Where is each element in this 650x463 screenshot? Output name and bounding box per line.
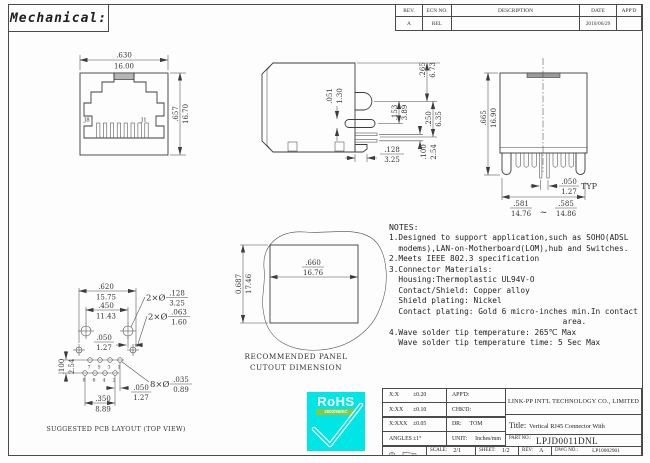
projection-symbol-cell bbox=[382, 446, 427, 456]
notes-line: Wave solder tip temperature time: 5 Sec … bbox=[389, 338, 647, 349]
svg-text:8.89: 8.89 bbox=[95, 406, 111, 414]
svg-text:7: 7 bbox=[87, 365, 90, 371]
shield-hole-left bbox=[78, 323, 94, 339]
svg-text:.265: .265 bbox=[419, 62, 427, 78]
tolerance-row: X:XX ±0.10 bbox=[382, 402, 447, 417]
rohs-checkmark-icon bbox=[307, 392, 365, 451]
svg-text:4: 4 bbox=[102, 378, 105, 384]
notes-line: Housing:Thermoplastic UL94V-O bbox=[389, 275, 647, 286]
dim-pcb-upper-span: .450 11.43 bbox=[86, 302, 128, 324]
svg-text:15.75: 15.75 bbox=[96, 294, 116, 302]
svg-text:2×Ø: 2×Ø bbox=[146, 293, 166, 304]
typ-suffix: TYP bbox=[581, 182, 598, 191]
callout-pin-holes: 8×Ø .035 0.89 bbox=[122, 362, 193, 395]
appd-cell: APP'D: bbox=[446, 388, 506, 403]
svg-text:3.89: 3.89 bbox=[401, 105, 409, 121]
notes-heading: NOTES: bbox=[389, 221, 647, 233]
contact-slots bbox=[97, 123, 149, 138]
side-pin-upper bbox=[355, 133, 377, 136]
rear-shield-legs bbox=[502, 153, 585, 175]
rev-cell: REV: A bbox=[518, 446, 552, 456]
svg-text:3.25: 3.25 bbox=[169, 300, 185, 308]
unit-cell: UNIT: Inches/mm bbox=[446, 431, 506, 446]
svg-text:.063: .063 bbox=[171, 308, 187, 316]
svg-text:6: 6 bbox=[92, 378, 95, 384]
svg-text:.620: .620 bbox=[98, 283, 114, 291]
pcb-caption: SUGGESTED PCB LAYOUT (TOP VIEW) bbox=[46, 425, 185, 433]
panel-cutout-view: .660 16.76 0.687 17.46 RECOMMENDED PANEL… bbox=[235, 232, 386, 373]
contact-label-j8: J8 bbox=[83, 118, 90, 124]
pcb-layout-view: .620 15.75 .450 11.43 2×Ø .128 3.25 bbox=[46, 283, 192, 433]
latch-bump bbox=[355, 93, 372, 111]
side-window-right bbox=[335, 142, 344, 151]
rear-top-tab bbox=[527, 73, 560, 78]
range-separator: ~ bbox=[540, 208, 548, 218]
panel-blob-outline bbox=[263, 232, 387, 351]
notes-line: 2.Meets IEEE 802.3 specification bbox=[389, 254, 647, 265]
title-block: X:X ±0.20 X:XX ±0.10 X:XXX ±0.05 ANGLES … bbox=[382, 388, 642, 455]
title-label: Title: bbox=[509, 421, 526, 430]
side-view: .265 6.73 .051 1.30 .153 3.89 bbox=[262, 62, 443, 164]
part-no-value: LPJD0011DNL bbox=[536, 436, 598, 446]
svg-text:16.00: 16.00 bbox=[114, 63, 134, 71]
dim-panel-height: 0.687 17.46 bbox=[235, 245, 268, 323]
side-pin-lower bbox=[355, 140, 377, 143]
callout-post-holes: 2×Ø .063 1.60 bbox=[137, 308, 190, 347]
sheet-cell: SHEET: 1/2 bbox=[475, 446, 519, 456]
tolerance-row: X:X ±0.20 bbox=[382, 388, 447, 403]
svg-text:.128: .128 bbox=[169, 289, 185, 297]
pcb-slot-tab bbox=[345, 120, 375, 128]
svg-text:5: 5 bbox=[97, 365, 100, 371]
svg-text:2×Ø: 2×Ø bbox=[148, 312, 168, 323]
dim-side-post-length: .128 3.25 bbox=[345, 146, 404, 164]
svg-text:.050: .050 bbox=[96, 334, 112, 342]
svg-text:14.76: 14.76 bbox=[511, 210, 532, 218]
dim-side-slot-thickness: .051 1.30 bbox=[326, 88, 344, 141]
side-housing-chamfer bbox=[267, 63, 273, 152]
svg-text:.100: .100 bbox=[420, 144, 428, 160]
dim-pcb-pin-stagger: .050 1.27 bbox=[106, 363, 151, 406]
svg-text:.100: .100 bbox=[58, 359, 66, 375]
title-cell: Title:Vertical RJ45 Connector With 10/10… bbox=[505, 414, 642, 435]
rear-view: .665 16.90 .050 1.27 TYP bbox=[480, 58, 598, 218]
third-angle-projection-icon bbox=[383, 451, 425, 456]
chkd-cell: CHK'D: bbox=[446, 402, 506, 417]
svg-text:1.30: 1.30 bbox=[336, 88, 344, 104]
panel-caption-line1: RECOMMENDED PANEL bbox=[245, 352, 348, 361]
notes-line: 1.Designed to support application,such a… bbox=[389, 233, 647, 244]
company-cell: LINK-PP INT'L TECHNOLOGY CO., LIMITED bbox=[505, 388, 642, 415]
dim-front-height: .657 16.70 bbox=[170, 73, 190, 155]
dim-side-pin-row-pitch: .100 2.54 bbox=[379, 126, 438, 160]
svg-text:.665: .665 bbox=[480, 110, 488, 126]
part-no-label: PART NO.: bbox=[509, 436, 531, 441]
svg-text:.050: .050 bbox=[561, 178, 577, 186]
svg-text:0.687: 0.687 bbox=[235, 274, 243, 294]
svg-text:.660: .660 bbox=[305, 259, 321, 267]
notes-line: Shield plating: Nickel bbox=[389, 296, 647, 307]
notes-block: NOTES: 1.Designed to support application… bbox=[389, 221, 647, 349]
svg-text:1.27: 1.27 bbox=[133, 394, 149, 402]
front-top-tab bbox=[114, 73, 134, 80]
front-body-outline bbox=[80, 73, 168, 155]
notes-line: 3.Connector Materials: bbox=[389, 265, 647, 276]
notes-line: area. bbox=[389, 317, 647, 328]
drawn-by-cell: DR: TOM bbox=[446, 417, 506, 432]
svg-text:.153: .153 bbox=[391, 105, 399, 121]
svg-text:1.60: 1.60 bbox=[171, 319, 187, 327]
svg-text:.051: .051 bbox=[326, 88, 334, 104]
dim-front-width: .630 16.00 bbox=[80, 52, 168, 71]
svg-text:.050: .050 bbox=[133, 384, 149, 392]
svg-text:1.27: 1.27 bbox=[96, 344, 112, 352]
svg-text:17.46: 17.46 bbox=[245, 273, 253, 294]
side-bottom-post bbox=[355, 145, 367, 153]
rohs-logo: RoHS 2002/95/EC bbox=[307, 392, 365, 451]
part-title-line1: Vertical RJ45 Connector With bbox=[529, 423, 605, 430]
svg-text:.250: .250 bbox=[425, 111, 433, 127]
svg-text:16.76: 16.76 bbox=[303, 269, 324, 277]
svg-text:0.89: 0.89 bbox=[173, 386, 189, 394]
svg-text:.630: .630 bbox=[116, 52, 132, 60]
dim-rear-pin-pitch: .050 1.27 TYP bbox=[530, 178, 598, 196]
drawing-sheet: Mechanical: REV. ECN NO. DESCRIPTION DAT… bbox=[0, 0, 650, 463]
panel-cutout-rect bbox=[270, 245, 358, 323]
svg-text:3: 3 bbox=[107, 365, 110, 371]
side-window-left bbox=[288, 142, 297, 151]
dim-panel-width: .660 16.76 bbox=[270, 259, 358, 277]
dim-rear-height: .665 16.90 bbox=[480, 73, 500, 175]
rear-center-pins bbox=[540, 153, 550, 178]
svg-text:16.90: 16.90 bbox=[490, 108, 498, 128]
svg-text:.450: .450 bbox=[98, 302, 114, 310]
notes-line: Contact plating: Gold 6 micro-inches min… bbox=[389, 307, 647, 318]
svg-text:1.27: 1.27 bbox=[561, 188, 577, 196]
rear-body-outline bbox=[500, 73, 587, 153]
svg-text:.128: .128 bbox=[384, 146, 400, 154]
svg-text:.581: .581 bbox=[513, 200, 529, 208]
contact-label-j1: J1 bbox=[140, 118, 147, 124]
scale-cell: SCALE: 2/1 bbox=[426, 446, 476, 456]
post-hole-left bbox=[73, 344, 85, 356]
notes-line: modems),LAN-on-Motherboard(LOM),hub and … bbox=[389, 244, 647, 255]
notes-line: 4.Wave solder tip temperature: 265℃ Max bbox=[389, 328, 647, 339]
svg-text:16.70: 16.70 bbox=[182, 104, 190, 124]
svg-text:6.73: 6.73 bbox=[429, 62, 437, 78]
tolerance-row: ANGLES ±1° bbox=[382, 431, 447, 446]
svg-text:2.54: 2.54 bbox=[68, 358, 76, 374]
dim-pcb-pin-span: .350 8.89 bbox=[85, 376, 115, 414]
side-housing-outline bbox=[262, 63, 355, 152]
svg-text:.585: .585 bbox=[558, 200, 574, 208]
dim-side-latch-to-pin: .250 6.35 bbox=[380, 102, 443, 138]
svg-text:3.25: 3.25 bbox=[384, 156, 400, 164]
svg-text:.035: .035 bbox=[173, 376, 189, 384]
svg-text:6.35: 6.35 bbox=[435, 111, 443, 127]
notes-line: Contact/Shield: Copper alloy bbox=[389, 286, 647, 297]
svg-text:.657: .657 bbox=[172, 106, 180, 122]
svg-text:11.43: 11.43 bbox=[96, 313, 116, 321]
shield-hole-right bbox=[120, 323, 136, 339]
svg-text:14.86: 14.86 bbox=[556, 210, 577, 218]
part-no-cell: PART NO.: LPJD0011DNL bbox=[505, 434, 642, 447]
company-name: LINK-PP INT'L TECHNOLOGY CO., LIMITED bbox=[508, 398, 639, 405]
dim-pcb-row-pitch: .100 2.54 bbox=[58, 351, 76, 382]
svg-text:8×Ø: 8×Ø bbox=[150, 379, 170, 390]
svg-text:.350: .350 bbox=[95, 395, 111, 403]
svg-text:2.54: 2.54 bbox=[430, 144, 438, 160]
panel-caption-line2: CUTOUT DIMENSION bbox=[250, 363, 342, 372]
tolerance-row: X:XXX ±0.05 bbox=[382, 417, 447, 432]
dwg-no-cell: DWG NO.: LP10002901 bbox=[551, 446, 642, 456]
front-view: J8 J1 .630 16.00 .657 16.70 bbox=[80, 52, 190, 156]
